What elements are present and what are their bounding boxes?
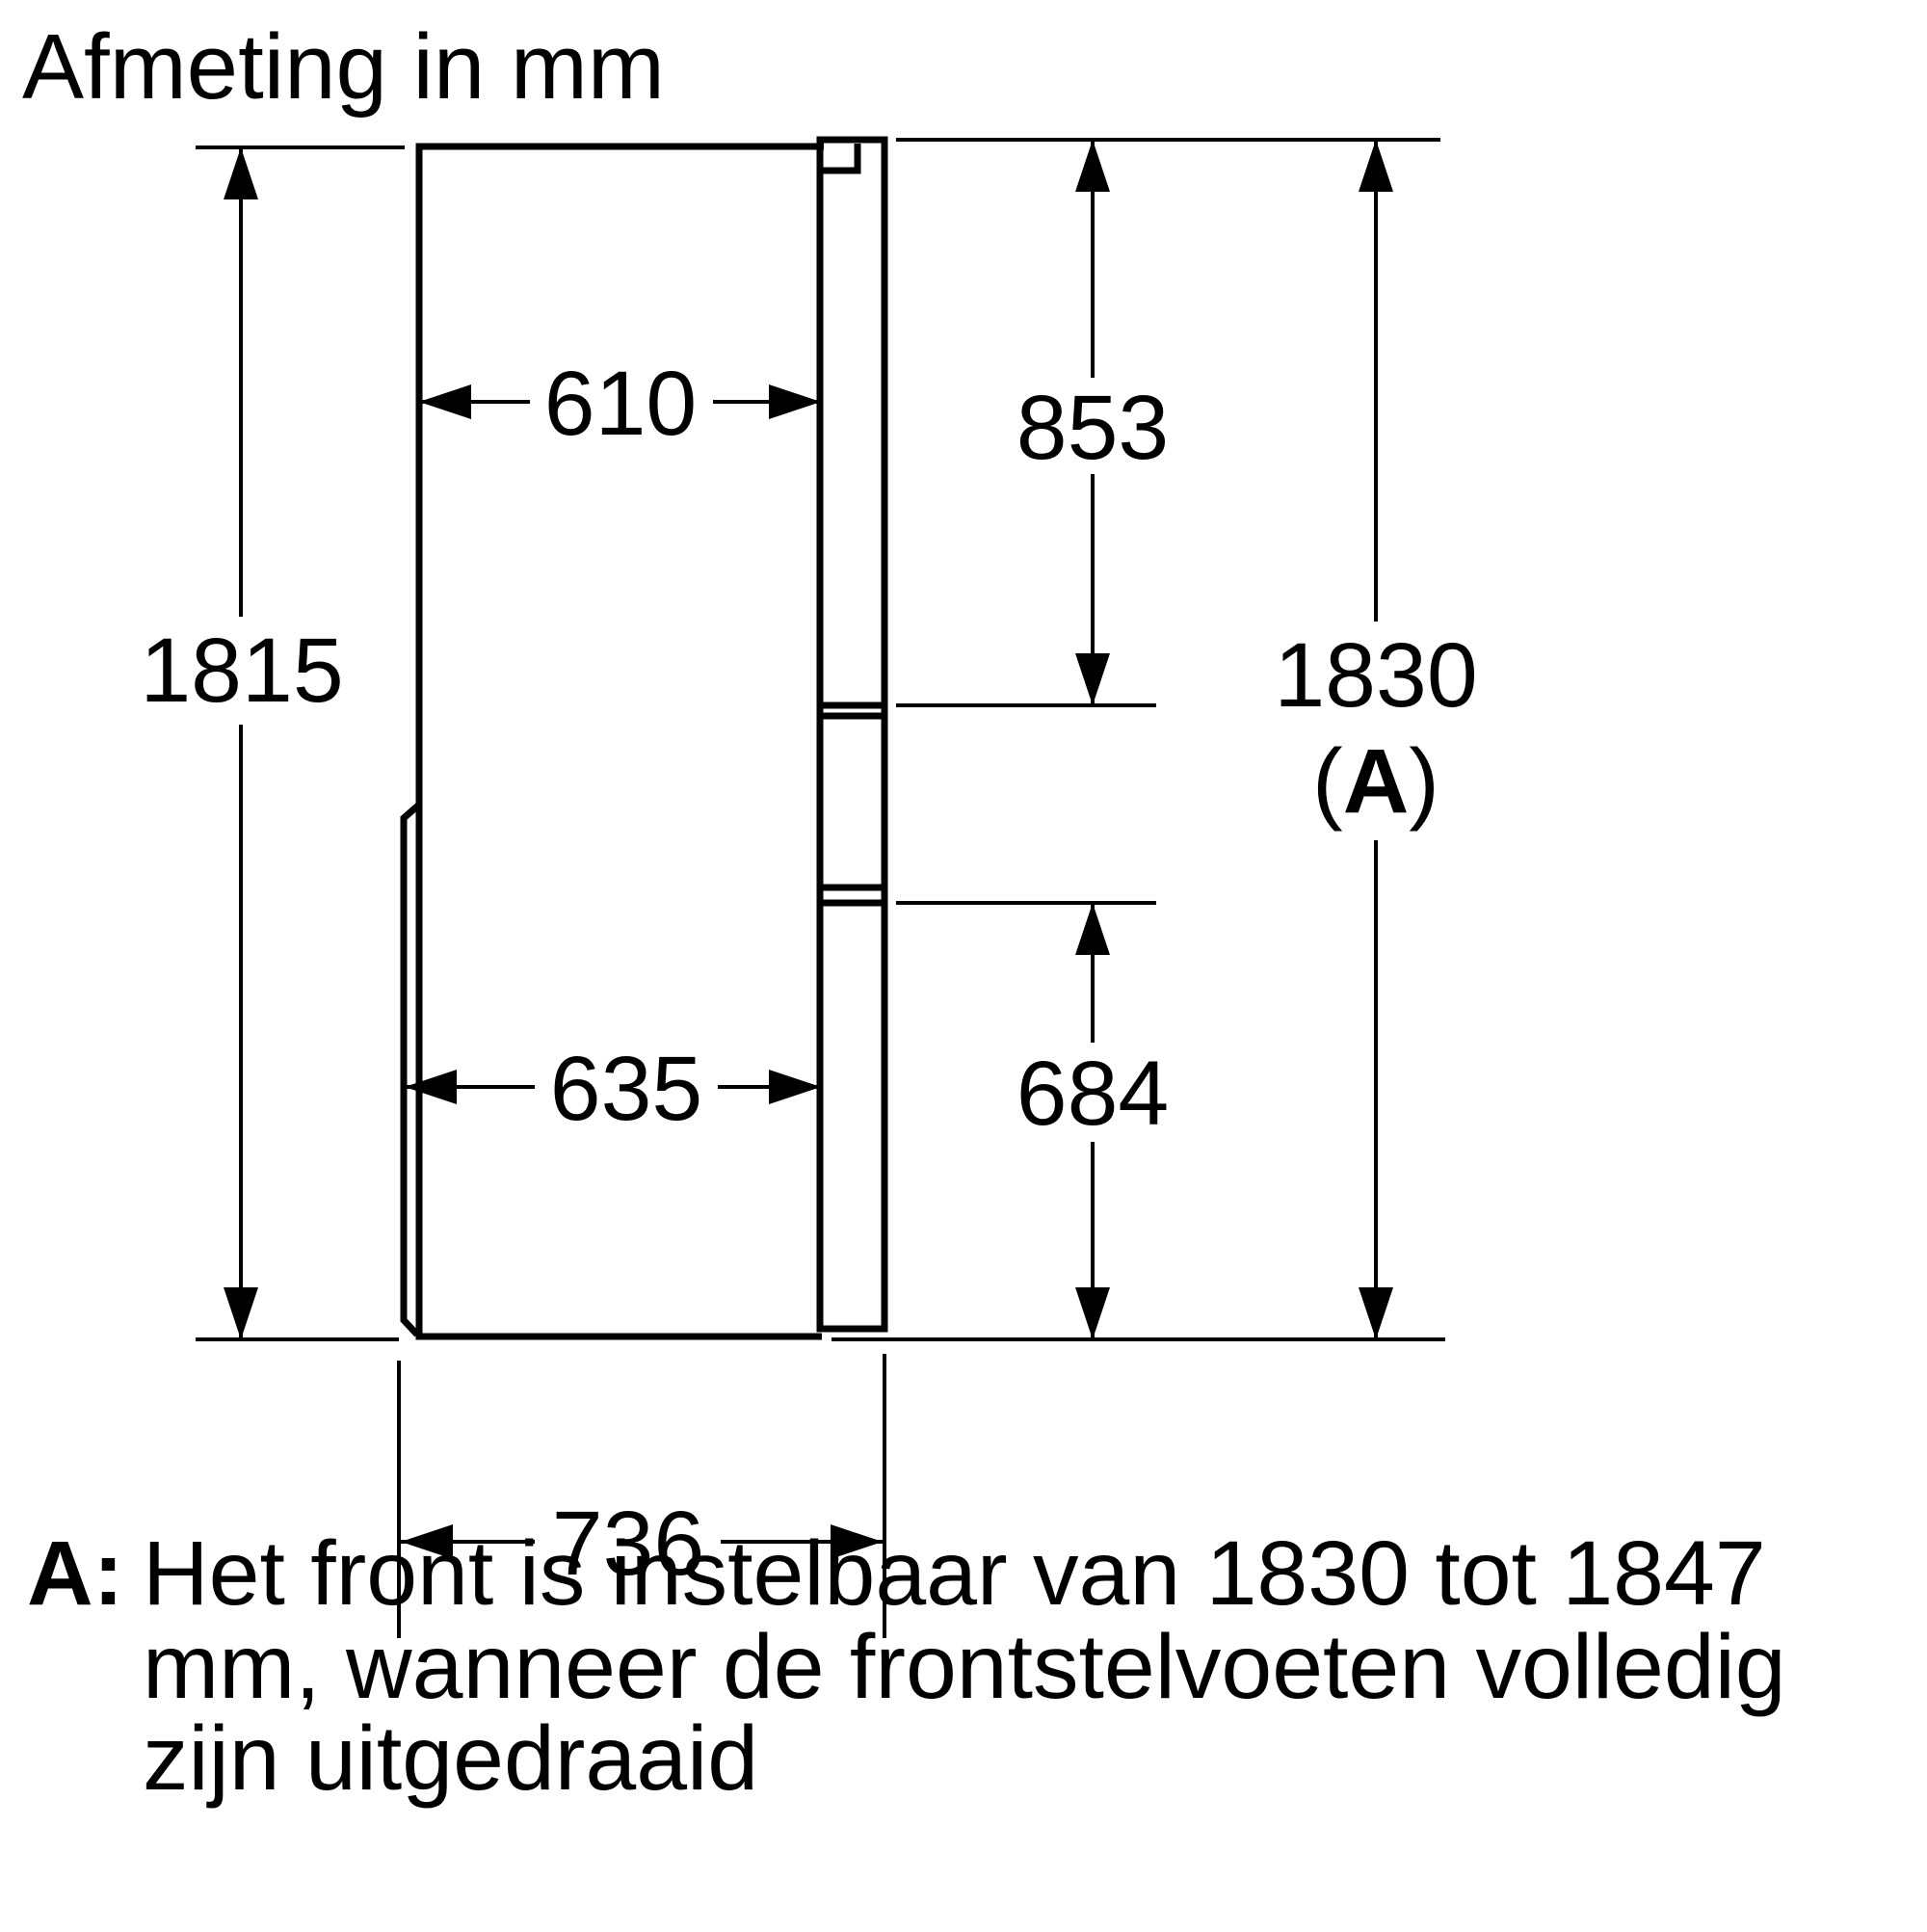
dim-635: 635 (405, 1038, 821, 1140)
dim-label-1815: 1815 (140, 620, 343, 722)
footnote-line-3: zijn uitgedraaid (143, 1707, 758, 1810)
fridge-door-panel (820, 140, 884, 1329)
arrowhead-down-icon (1075, 653, 1110, 705)
dim-1815: 1815 (140, 147, 405, 1339)
arrowhead-left-icon (405, 1070, 457, 1104)
dim-label-853: 853 (1016, 377, 1170, 479)
dim-610: 610 (419, 353, 821, 455)
arrowhead-down-icon (1075, 1287, 1110, 1339)
arrowhead-down-icon (224, 1287, 258, 1339)
fridge-cabinet-outline (419, 146, 824, 1337)
arrowhead-right-icon (769, 384, 821, 419)
dim-label-684: 684 (1016, 1043, 1170, 1145)
dim-label-1830-key: (A) (1312, 730, 1439, 833)
footnote-line-1: Het front is instelbaar van 1830 tot 184… (143, 1522, 1766, 1625)
dim-853: 853 (896, 140, 1440, 705)
arrowhead-down-icon (1359, 1287, 1393, 1339)
footnote-line-2: mm, wanneer de frontstelvoeten volledig (143, 1616, 1786, 1718)
arrowhead-up-icon (224, 147, 258, 199)
footnote: A: Het front is instelbaar van 1830 tot … (27, 1522, 1786, 1810)
dim-label-1830: 1830 (1274, 624, 1477, 727)
dim-label-610: 610 (544, 353, 698, 455)
dim-684: 684 (832, 903, 1445, 1339)
dim-label-635: 635 (550, 1038, 703, 1140)
fridge-outline-group (404, 140, 884, 1337)
door-hinge-notch (820, 144, 858, 171)
dim-1830: 1830 (A) (1274, 140, 1477, 1339)
page-title: Afmeting in mm (22, 15, 665, 119)
arrowhead-right-icon (769, 1070, 821, 1104)
dimension-diagram-page: Afmeting in mm 1815 (0, 0, 1927, 1927)
arrowhead-up-icon (1075, 903, 1110, 955)
arrowhead-up-icon (1359, 140, 1393, 192)
arrowhead-left-icon (419, 384, 471, 419)
dimension-diagram: Afmeting in mm 1815 (0, 0, 1927, 1927)
arrowhead-up-icon (1075, 140, 1110, 192)
footnote-key: A: (27, 1522, 123, 1625)
